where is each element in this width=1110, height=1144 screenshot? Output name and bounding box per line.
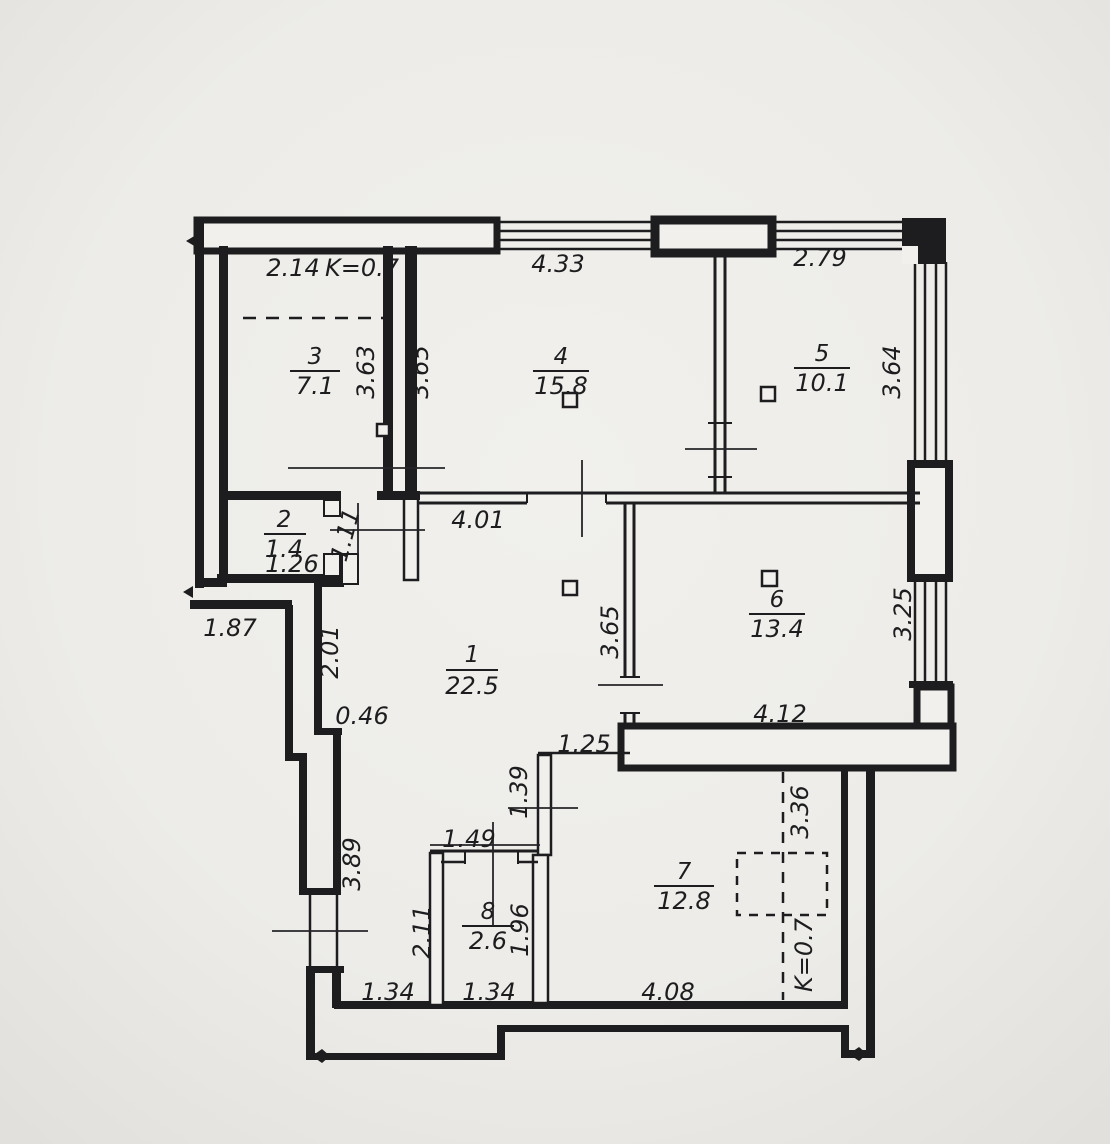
room-1-area: 22.5: [445, 672, 498, 700]
dim-passage-width: 1.25: [557, 730, 610, 758]
dim-room3-width: 2.14: [266, 254, 319, 282]
dim-room3-depth: 3.63: [352, 345, 380, 398]
dim-hall-wall: 3.65: [596, 605, 624, 658]
room-6-number: 6: [770, 587, 785, 613]
dim-room8-width-b: 1.34: [462, 978, 515, 1006]
room-5-area: 10.1: [795, 369, 848, 397]
dim-room6-depth: 3.25: [889, 587, 917, 640]
dim-room6-width: 4.12: [753, 700, 806, 728]
dim-nook-width-b: 1.34: [361, 978, 414, 1006]
dim-room4-depth: 3.65: [406, 345, 434, 398]
dim-nook-width: 1.49: [442, 825, 495, 853]
corner-column: [902, 218, 946, 264]
dim-step: 0.46: [335, 702, 388, 730]
room-5-number: 5: [815, 341, 830, 367]
room-6-area: 13.4: [750, 615, 803, 643]
dim-room2-width: 1.26: [265, 550, 318, 578]
dim-wall-upper: 2.01: [316, 625, 344, 678]
dim-k-bottom: K=0.7: [790, 917, 818, 992]
dim-room5-width: 2.79: [793, 244, 846, 272]
dim-room7-width: 4.08: [641, 978, 694, 1006]
dim-wall-lower: 3.89: [338, 837, 366, 890]
room-3-area: 7.1: [296, 372, 334, 400]
dim-room5-depth: 3.64: [878, 345, 906, 398]
room-4-area: 15.8: [534, 372, 587, 400]
room-7-area: 12.8: [657, 887, 710, 915]
room-4-number: 4: [554, 344, 569, 370]
dim-k-top: K=0.7: [325, 254, 400, 282]
dim-room8-depth: 1.96: [506, 903, 534, 956]
dim-passage-depth: 1.39: [505, 765, 533, 818]
room-2-number: 2: [277, 507, 292, 533]
room-8-number: 8: [481, 899, 496, 925]
dim-balcony-depth: 3.36: [786, 785, 814, 838]
room-7-number: 7: [677, 859, 692, 885]
floor-plan-photo: 1 22.5 2 1.4 3 7.1 4 15.8 5 10.1 6 13.4: [0, 0, 1110, 1144]
dim-hall-width: 4.01: [451, 506, 504, 534]
room-8-area: 2.6: [469, 927, 507, 955]
room-3-number: 3: [308, 344, 323, 370]
dim-ledge: 1.87: [203, 614, 257, 642]
floor-plan-drawing: 1 22.5 2 1.4 3 7.1 4 15.8 5 10.1 6 13.4: [0, 0, 1110, 1144]
dim-nook-depth: 2.11: [408, 905, 436, 958]
room-1-number: 1: [465, 642, 480, 668]
dim-room4-width: 4.33: [531, 250, 584, 278]
